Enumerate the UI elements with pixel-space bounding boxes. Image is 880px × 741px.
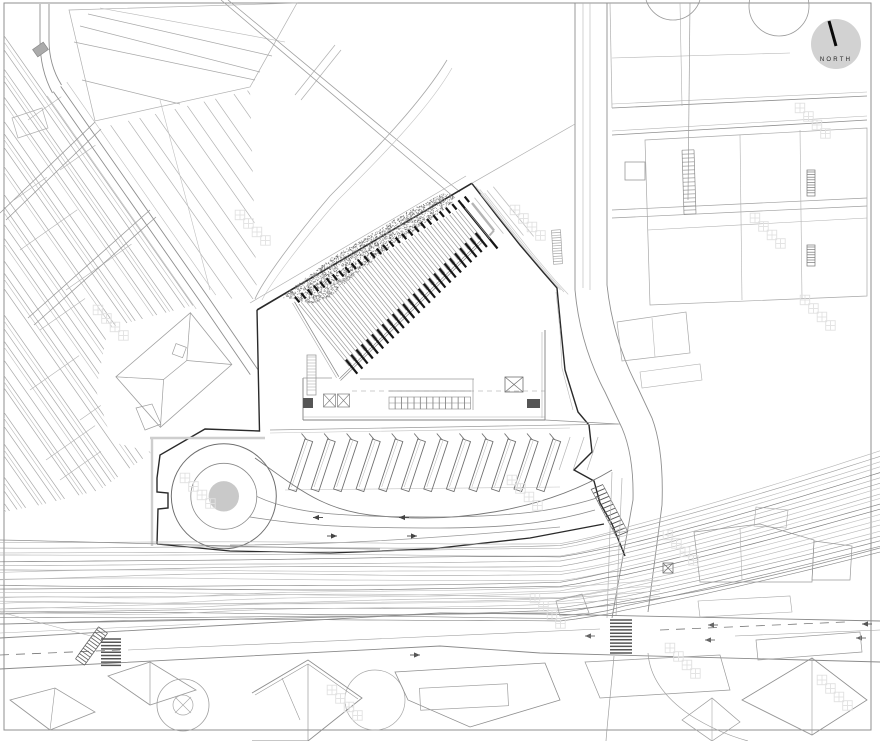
svg-text:NORTH: NORTH: [820, 57, 852, 63]
